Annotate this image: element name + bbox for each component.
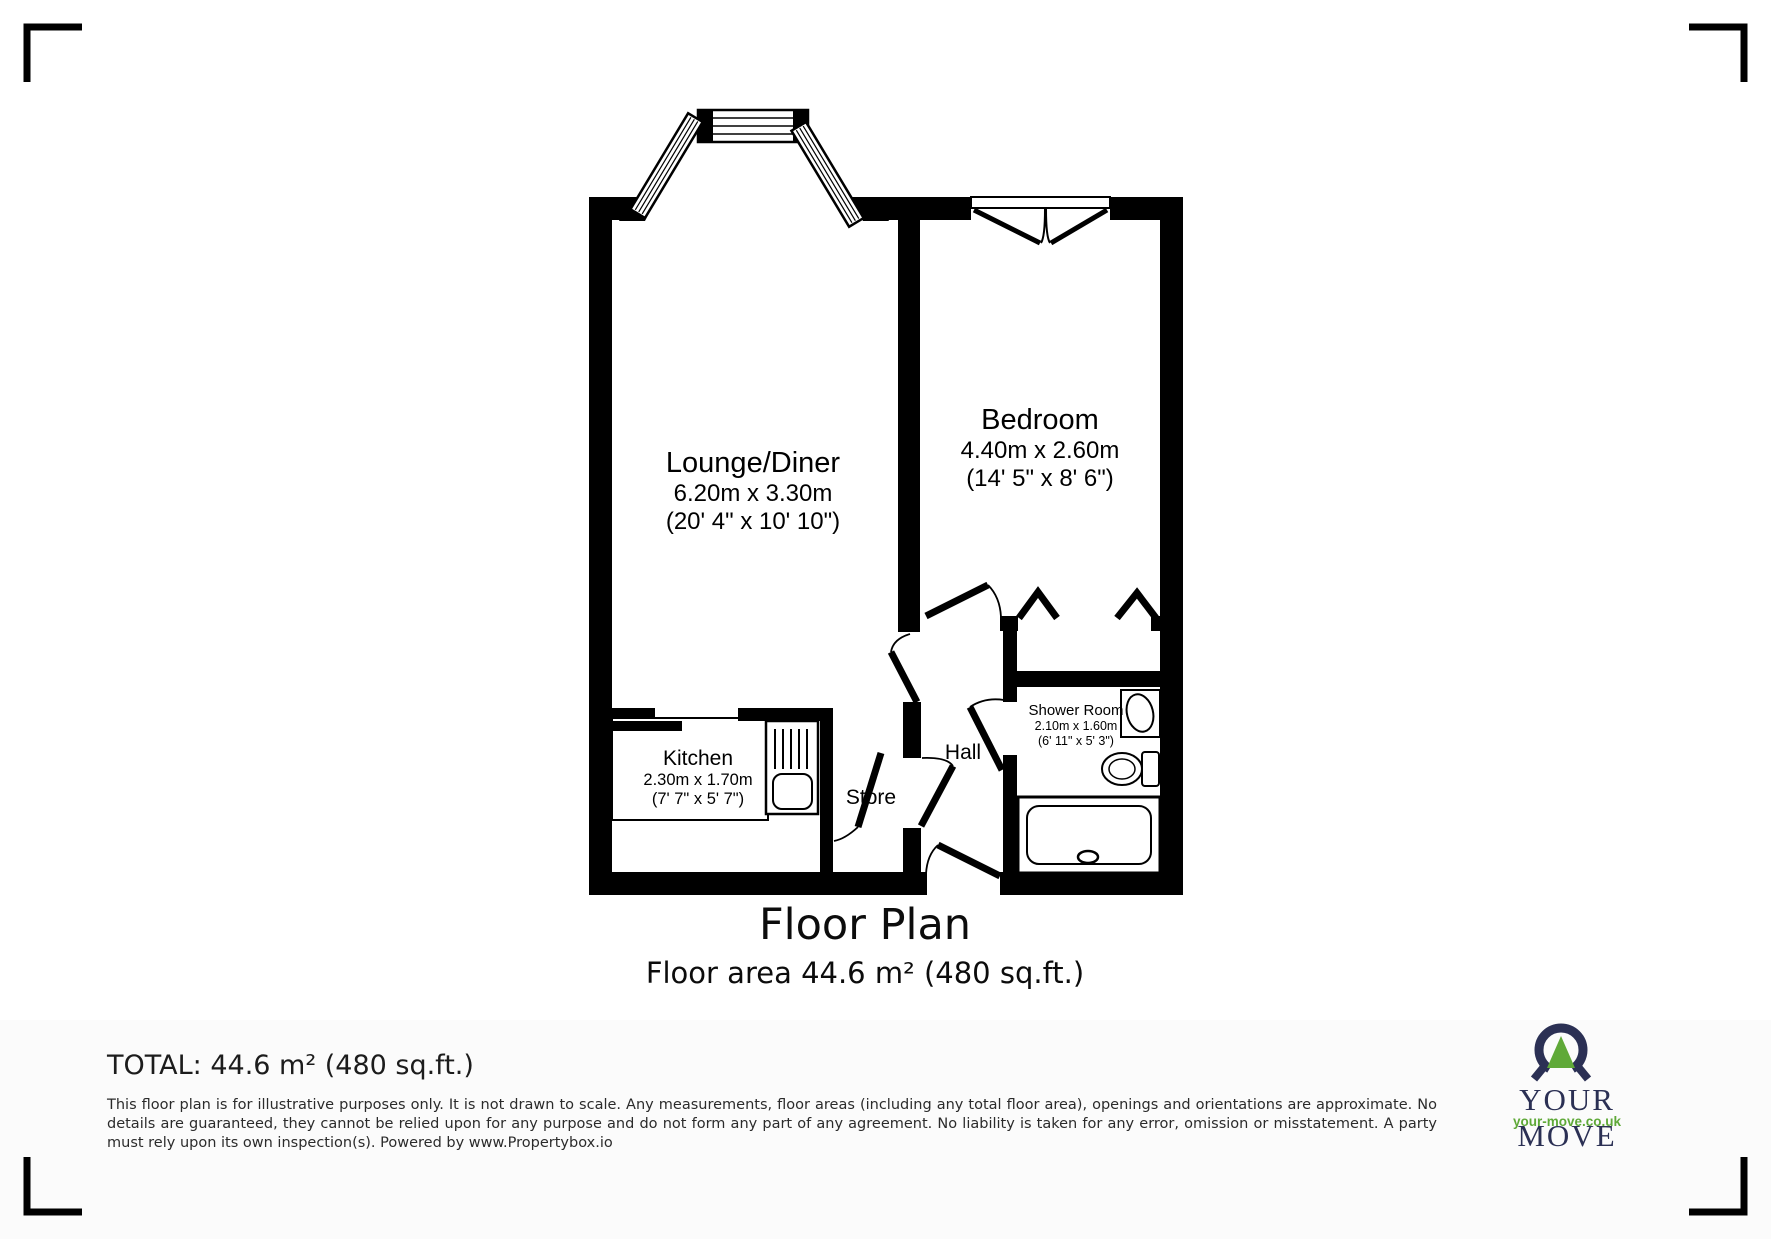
toilet: [1102, 752, 1159, 786]
room-label-kitchen: Kitchen 2.30m x 1.70m (7' 7" x 5' 7"): [613, 747, 783, 809]
hall-name: Hall: [923, 741, 1003, 765]
bay-window-left-pane: [630, 113, 702, 218]
corner-bracket-bottom-left: [27, 1157, 82, 1212]
bedroom-name: Bedroom: [880, 404, 1200, 437]
room-label-hall: Hall: [923, 741, 1003, 765]
room-label-lounge: Lounge/Diner 6.20m x 3.30m (20' 4" x 10'…: [583, 447, 923, 536]
corner-bracket-top-right: [1689, 27, 1744, 82]
bedroom-window: [971, 197, 1110, 243]
total-area-text: TOTAL: 44.6 m² (480 sq.ft.): [107, 1050, 474, 1081]
lounge-door: [891, 634, 917, 702]
shower-room-metric: 2.10m x 1.60m: [1001, 719, 1151, 733]
room-label-shower-room: Shower Room 2.10m x 1.60m (6' 11" x 5' 3…: [1001, 702, 1151, 748]
corner-bracket-bottom-right: [1689, 1157, 1744, 1212]
bedroom-imperial: (14' 5" x 8' 6"): [880, 465, 1200, 493]
room-label-store: Store: [821, 786, 921, 810]
your-move-website-text: your-move.co.uk: [1467, 1114, 1667, 1129]
bedroom-door: [926, 585, 1001, 617]
bedroom-metric: 4.40m x 2.60m: [880, 437, 1200, 465]
floor-area-subtitle: Floor area 44.6 m² (480 sq.ft.): [465, 956, 1265, 990]
kitchen-metric: 2.30m x 1.70m: [613, 771, 783, 790]
floor-plan-page: Lounge/Diner 6.20m x 3.30m (20' 4" x 10'…: [0, 0, 1771, 1239]
logo-triangle: [1547, 1036, 1575, 1068]
kitchen-name: Kitchen: [613, 747, 783, 771]
room-label-bedroom: Bedroom 4.40m x 2.60m (14' 5" x 8' 6"): [880, 404, 1200, 493]
disclaimer-text: This floor plan is for illustrative purp…: [107, 1096, 1437, 1153]
lounge-name: Lounge/Diner: [583, 447, 923, 480]
your-move-logo-mark: [1534, 1028, 1588, 1079]
lounge-metric: 6.20m x 3.30m: [583, 480, 923, 508]
kitchen-imperial: (7' 7" x 5' 7"): [613, 790, 783, 809]
shower-room-imperial: (6' 11" x 5' 3"): [1001, 734, 1151, 748]
lounge-imperial: (20' 4" x 10' 10"): [583, 508, 923, 536]
entrance-door: [926, 845, 1000, 876]
cupboard-door: [921, 758, 953, 826]
page-title: Floor Plan: [565, 900, 1165, 950]
shower-tray: [1018, 797, 1160, 873]
wardrobe-door-chevrons: [1019, 592, 1156, 618]
store-name: Store: [821, 786, 921, 810]
corner-bracket-top-left: [27, 27, 82, 82]
bay-window-right-pane: [791, 122, 863, 227]
bay-window: [630, 110, 863, 227]
shower-room-name: Shower Room: [1001, 702, 1151, 719]
